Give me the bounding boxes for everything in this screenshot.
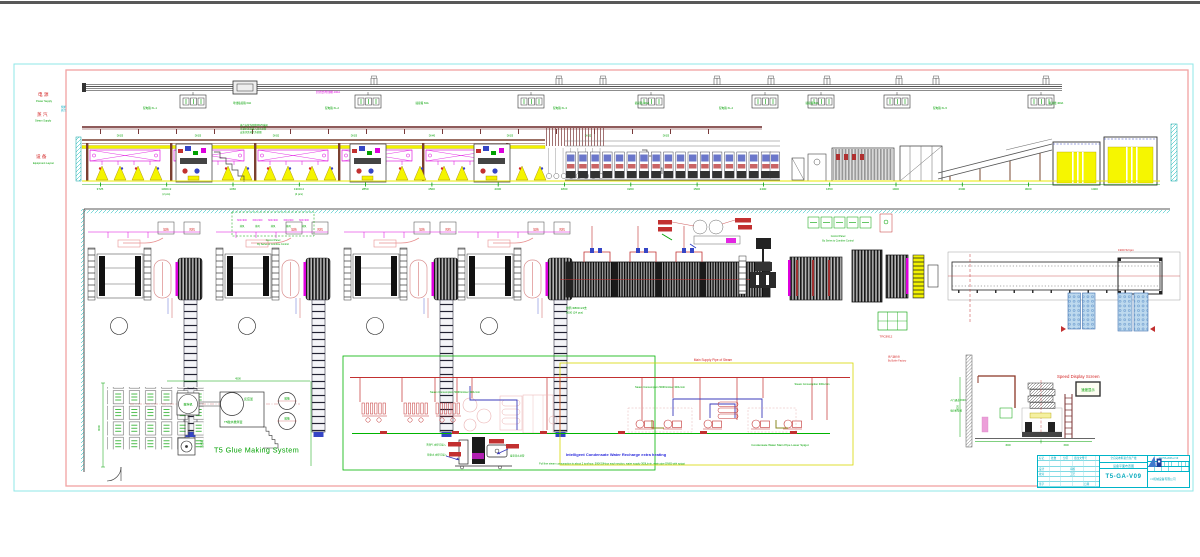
right-hatch-column bbox=[1171, 124, 1177, 181]
rev-label-count: 处数 bbox=[1051, 457, 1056, 460]
auto-label: 加热 bbox=[291, 228, 297, 232]
drawing-number: T5-GA-V09 bbox=[1100, 469, 1147, 487]
steam-main-label: Main Supply Pipe of Steam bbox=[694, 358, 733, 362]
pump-note: 放料泵 bbox=[200, 440, 204, 448]
svg-text:安装详见蒸汽系统图: 安装详见蒸汽系统图 bbox=[240, 130, 262, 134]
reactor-label: 反应釜 bbox=[244, 396, 253, 401]
steam-label-cn: 蒸 汽 bbox=[37, 111, 48, 118]
auto-label: 排风 bbox=[255, 224, 260, 228]
rev-label-zone: 分区 bbox=[1063, 457, 1068, 460]
auto-label: 4500 bbox=[428, 187, 435, 191]
power-label-en: Power Supply bbox=[36, 99, 53, 103]
gas-note: 天然气 由甲方接入 bbox=[426, 443, 446, 447]
tank-note: T5胶水搅拌釜 bbox=[224, 419, 243, 424]
drum-label-2: 5000 (24 pcs) bbox=[566, 311, 583, 315]
cons-label-2: Steam Consumption 500KG/Hour 300L/min bbox=[635, 385, 686, 389]
rev-label-sign: 签字 bbox=[1039, 483, 1044, 486]
steam-risers bbox=[360, 378, 827, 431]
incline-conveyor bbox=[938, 139, 1052, 181]
auto-label: 配电箱 XL-4 bbox=[719, 106, 734, 110]
offsite-note-1: 供汽锅炉房 bbox=[888, 355, 901, 359]
condensate-pipes bbox=[470, 386, 762, 430]
auto-label: 1300×2 bbox=[161, 187, 171, 191]
auto-label: 插接箱 63A bbox=[415, 101, 428, 105]
spec-table: TRC8912 bbox=[878, 312, 907, 339]
auto-label: 600×900 bbox=[299, 219, 309, 222]
busbar: 封闭式母线槽 400A bbox=[82, 76, 1062, 94]
camera-stand bbox=[739, 238, 776, 294]
role-process: 工艺 bbox=[1070, 473, 1075, 476]
auto-label: 风机 bbox=[445, 228, 451, 232]
speed-display-detail: Speed Display Screen 速度显示 人行通道 1500 电控柜位… bbox=[950, 355, 1100, 447]
auto-label: 插接箱 100A bbox=[635, 101, 650, 105]
title-block: 标记 处数 分区 更改文件号 设计 校对 审核 工艺 签字 日期 全自动布料复合… bbox=[1037, 455, 1190, 488]
schematic-blue-title: Intelligent Condensate Water Recharge ex… bbox=[566, 452, 667, 457]
auto-label: 600×900 bbox=[284, 219, 294, 222]
auto-label: 1450 bbox=[229, 187, 236, 191]
glue-room: 9000 4500 搅拌机 反应釜 T5胶水搅拌釜 胶桶 胶桶 放料泵 T5 G… bbox=[97, 377, 311, 482]
boiler-src-1: 锅炉 bbox=[61, 105, 67, 109]
auto-label: 2850 bbox=[362, 187, 369, 191]
auto-label: DN25 bbox=[195, 135, 202, 138]
auto-label: DN40 bbox=[429, 135, 436, 138]
auto-label: 配电箱 XL-2 bbox=[325, 106, 340, 110]
drum-2-label: 胶桶 bbox=[284, 417, 290, 421]
mixer-label: 搅拌机 bbox=[183, 402, 192, 407]
cad-drawing-canvas[interactable]: 电 源 Power Supply 蒸 汽 Steam Supply 设 备 Eq… bbox=[0, 0, 1200, 557]
auto-label: 排风 bbox=[286, 224, 291, 228]
svg-text:蒸汽支管均预留DN25球阀: 蒸汽支管均预留DN25球阀 bbox=[240, 123, 268, 127]
role-audit: 审核 bbox=[1070, 468, 1075, 471]
rev-label-mark: 标记 bbox=[1039, 457, 1044, 460]
auto-label: 1650 bbox=[826, 187, 833, 191]
busbar-note: 封闭式母线槽 400A bbox=[316, 90, 340, 94]
table-label: TRC8912 bbox=[880, 335, 893, 339]
auto-label: 插接箱 63A bbox=[805, 101, 818, 105]
right-machines bbox=[792, 146, 942, 181]
busbar-notes: 配电箱 XL-1母线插接箱 63A配电箱 XL-2插接箱 63A配电箱 XL-3… bbox=[143, 101, 1064, 110]
margin-labels: 电 源 Power Supply 蒸 汽 Steam Supply 设 备 Eq… bbox=[33, 91, 67, 165]
speed-display-title: Speed Display Screen bbox=[1057, 374, 1100, 379]
schematic-green-sub: Full line steam consumption is about 2 t… bbox=[539, 462, 685, 466]
svg-text:By Series to Combine Control: By Series to Combine Control bbox=[822, 240, 854, 243]
speed-dim-h2: 1500 bbox=[1063, 444, 1069, 447]
auto-label: 1400 bbox=[1091, 187, 1098, 191]
drawing-sheet: 电 源 Power Supply 蒸 汽 Steam Supply 设 备 Eq… bbox=[0, 0, 1200, 557]
glue-dim-h: 9000 bbox=[97, 425, 101, 431]
rev-label-date: 日期 bbox=[1084, 483, 1089, 486]
auto-label: DN32 bbox=[273, 135, 280, 138]
drum-label-1: 烘筒 Φ800×24支 bbox=[566, 306, 587, 310]
auto-label: 3000 bbox=[1025, 187, 1032, 191]
svg-text:冷凝水就近接入回水总管: 冷凝水就近接入回水总管 bbox=[240, 127, 267, 131]
auto-label: 600×900 bbox=[268, 219, 278, 222]
auto-label: DN25 bbox=[117, 135, 124, 138]
auto-label: 配电箱 XL-1 bbox=[143, 106, 158, 110]
fan-boxes: Control Panel By Series to Combine Contr… bbox=[808, 214, 892, 243]
auto-label: 排风 bbox=[240, 224, 245, 228]
auto-label: 风机 bbox=[559, 228, 565, 232]
drawing-name-cell: 全自动布料复合生产线 设备平面布置图 T5-GA-V09 bbox=[1100, 456, 1148, 487]
auto-label: 600×900 bbox=[237, 219, 247, 222]
auto-label: 1500 bbox=[693, 187, 700, 191]
auto-label: DN25 bbox=[507, 135, 514, 138]
role-design: 设计 bbox=[1039, 468, 1044, 471]
dimension-labels: 37251300×2(2 pcs)14501300×4(4 pcs)285045… bbox=[97, 187, 1099, 196]
speed-note-1: 人行通道 1500 bbox=[950, 398, 966, 402]
module-blocks bbox=[788, 250, 938, 302]
auto-label: 风机 bbox=[189, 228, 195, 232]
auto-label: (2 pcs) bbox=[162, 192, 170, 196]
drawing-code-cell: W2706-2006-2-V9 ××机械设备有限公司 bbox=[1148, 456, 1189, 487]
equip-label-cn: 设 备 bbox=[36, 153, 47, 160]
steam-dn-labels: DN25DN25DN32DN25DN40DN25DN32DN25 bbox=[117, 135, 670, 138]
revision-table: 标记 处数 分区 更改文件号 设计 校对 审核 工艺 签字 日期 bbox=[1038, 456, 1100, 487]
auto-label: 1300×4 bbox=[294, 187, 304, 191]
plan-wall bbox=[81, 209, 1170, 472]
pallets bbox=[1061, 293, 1155, 332]
auto-label: 风机 bbox=[317, 228, 323, 232]
svg-text:Control Panel: Control Panel bbox=[266, 239, 281, 242]
access-ladder bbox=[1065, 394, 1072, 438]
cons-label-3: Steam Consumption 300L/min bbox=[795, 382, 830, 386]
oven-modules bbox=[565, 141, 780, 180]
condensate-label: Condensate Water Main Pipe Lower Spigot bbox=[751, 443, 809, 447]
distribution-boxes bbox=[180, 92, 1054, 108]
steam-schematic: Main Supply Pipe of Steam Steam Consumpt… bbox=[343, 355, 907, 471]
auto-label: 3200 bbox=[627, 187, 634, 191]
water-note: 软化水 由甲方接入 bbox=[427, 453, 447, 457]
plan-group-labels: 加热风机加热风机加热风机加热风机 bbox=[163, 228, 565, 232]
boiler-src-2: 供汽 bbox=[61, 109, 67, 113]
return-note: 接至回水总管 bbox=[510, 454, 525, 458]
auto-label: DN25 bbox=[351, 135, 358, 138]
door-swing-arc bbox=[107, 467, 121, 481]
glue-room-title: T5 Glue Making System bbox=[214, 446, 299, 455]
glue-dim-w: 4500 bbox=[235, 377, 241, 381]
enclosure-2 bbox=[1104, 137, 1157, 185]
drum-steam-loops bbox=[584, 226, 702, 262]
offsite-note-2: By Boiler Factory bbox=[888, 360, 907, 363]
company-name: ××机械设备有限公司 bbox=[1148, 472, 1189, 487]
enclosure-1 bbox=[1053, 142, 1100, 185]
speed-dim-h1: 3000 bbox=[1005, 444, 1011, 447]
auto-label: 配电箱 XL-3 bbox=[553, 106, 568, 110]
auto-label: 配电箱 XL-5 bbox=[933, 106, 948, 110]
faint-coils bbox=[463, 395, 557, 433]
auto-label: 总进线 400A bbox=[1049, 101, 1064, 105]
rev-label-doc: 更改文件号 bbox=[1074, 457, 1087, 460]
auto-label: 母线插接箱 63A bbox=[233, 101, 252, 105]
auto-label: 2400 bbox=[760, 187, 767, 191]
auto-label: (4 pcs) bbox=[295, 192, 303, 196]
steam-spec-note: 蒸汽支管均预留DN25球阀 冷凝水就近接入回水总管 安装详见蒸汽系统图 bbox=[240, 123, 268, 134]
auto-label: 排风 bbox=[271, 224, 276, 228]
svg-text:By Series to Combine Control: By Series to Combine Control bbox=[257, 243, 289, 246]
display-screen-text: 速度显示 bbox=[1081, 387, 1095, 392]
power-label-cn: 电 源 bbox=[38, 91, 49, 98]
auto-label: 3725 bbox=[97, 187, 104, 191]
auto-label: 1800 bbox=[561, 187, 568, 191]
steam-pipe: 蒸汽支管均预留DN25球阀 冷凝水就近接入回水总管 安装详见蒸汽系统图 bbox=[82, 123, 762, 134]
auto-label: 加热 bbox=[163, 228, 169, 232]
drum-1-label: 胶桶 bbox=[284, 397, 290, 401]
role-check: 校对 bbox=[1039, 473, 1044, 476]
auto-label: 加热 bbox=[533, 228, 539, 232]
auto-label: 排风 bbox=[302, 224, 307, 228]
steam-label-en: Steam Supply bbox=[35, 119, 52, 123]
company-logo-icon bbox=[1148, 456, 1162, 467]
auto-label: 2000 bbox=[494, 187, 501, 191]
auto-label: 1900 bbox=[892, 187, 899, 191]
speed-dim-v: 3000 bbox=[957, 405, 960, 411]
auto-label: DN25 bbox=[663, 135, 670, 138]
rpm-label: 1900 52rpm bbox=[1118, 248, 1135, 252]
steam-manifold bbox=[658, 218, 752, 248]
cons-label-1: Steam Consumption 500KG/Hour 300L/min bbox=[430, 390, 481, 394]
auto-label: 2600 bbox=[959, 187, 966, 191]
equip-label-en: Equipment Layout bbox=[33, 161, 54, 165]
auto-label: 加热 bbox=[419, 228, 425, 232]
svg-text:Control Panel: Control Panel bbox=[831, 235, 846, 238]
auto-label: 600×900 bbox=[253, 219, 263, 222]
boiler-unit bbox=[446, 437, 519, 469]
